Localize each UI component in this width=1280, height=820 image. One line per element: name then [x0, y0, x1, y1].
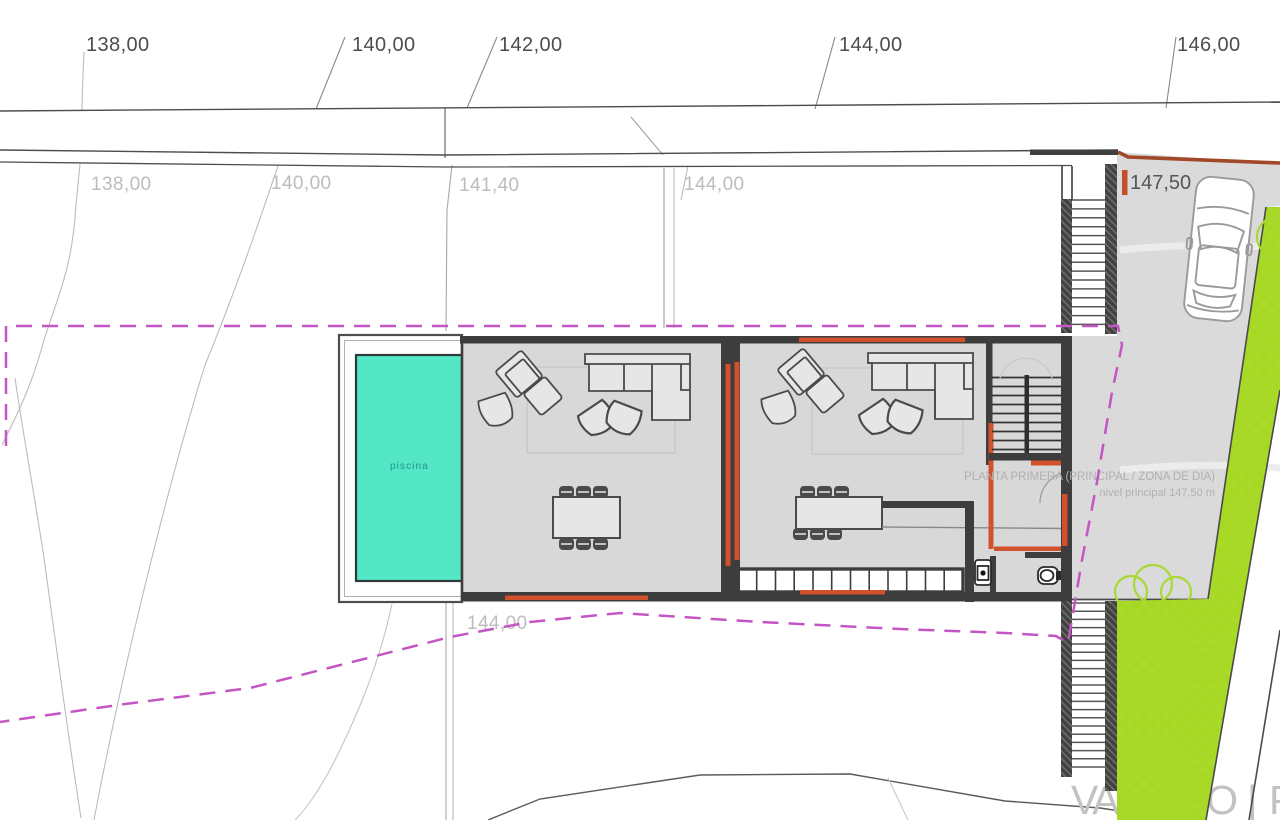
svg-text:144,00: 144,00	[684, 174, 745, 195]
svg-text:144,00: 144,00	[839, 34, 903, 56]
svg-text:138,00: 138,00	[91, 174, 152, 195]
svg-text:142,00: 142,00	[499, 34, 563, 56]
svg-text:140,00: 140,00	[352, 34, 416, 56]
svg-text:140,00: 140,00	[271, 173, 332, 194]
svg-text:141,40: 141,40	[459, 175, 520, 196]
svg-text:146,00: 146,00	[1177, 34, 1241, 56]
svg-text:PLANTA PRIMERA (PRINCIPAL / ZO: PLANTA PRIMERA (PRINCIPAL / ZONA DE DIA)	[964, 471, 1215, 483]
svg-text:piscina: piscina	[390, 461, 429, 472]
svg-text:nivel principal 147,50 m: nivel principal 147,50 m	[1099, 487, 1215, 499]
svg-text:147,50: 147,50	[1130, 172, 1191, 194]
svg-text:138,00: 138,00	[86, 34, 150, 56]
